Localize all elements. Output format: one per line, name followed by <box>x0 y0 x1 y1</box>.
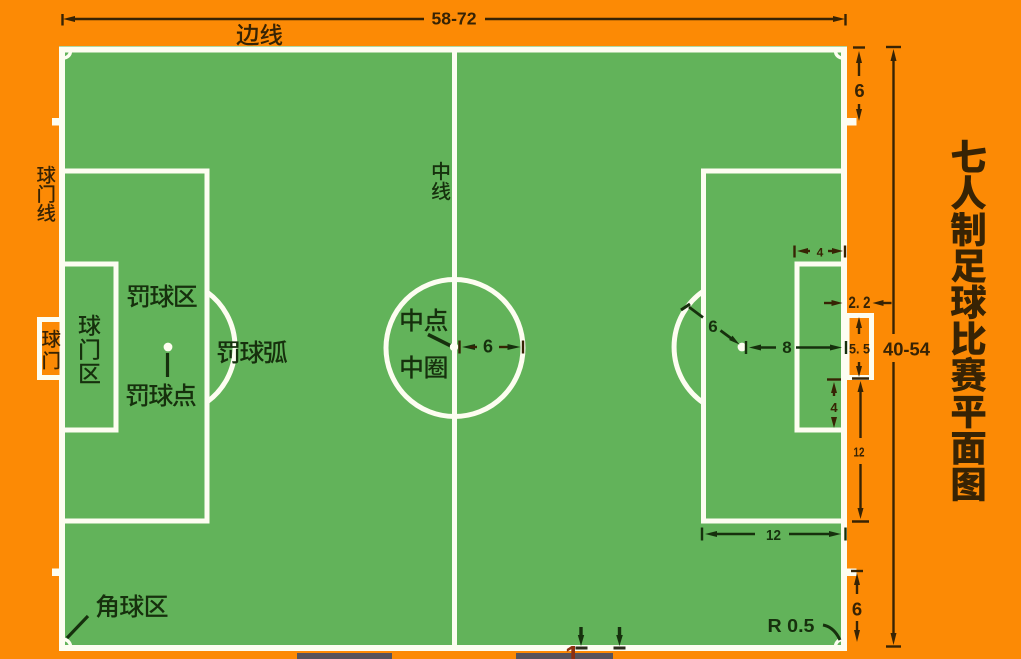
svg-text:6: 6 <box>852 599 862 620</box>
svg-text:5. 5: 5. 5 <box>849 341 870 357</box>
svg-text:6: 6 <box>854 80 864 101</box>
svg-text:4: 4 <box>817 246 824 260</box>
svg-text:1: 1 <box>565 641 580 659</box>
svg-text:12: 12 <box>854 445 865 460</box>
svg-text:2. 2: 2. 2 <box>849 294 871 312</box>
svg-text:12: 12 <box>766 528 781 544</box>
svg-text:6: 6 <box>708 317 717 336</box>
svg-text:R 0.5: R 0.5 <box>768 616 815 636</box>
svg-text:6: 6 <box>483 337 493 357</box>
svg-text:40-54: 40-54 <box>883 340 930 360</box>
svg-text:4: 4 <box>830 400 838 415</box>
svg-text:58-72: 58-72 <box>432 9 477 29</box>
svg-text:8: 8 <box>782 338 791 357</box>
